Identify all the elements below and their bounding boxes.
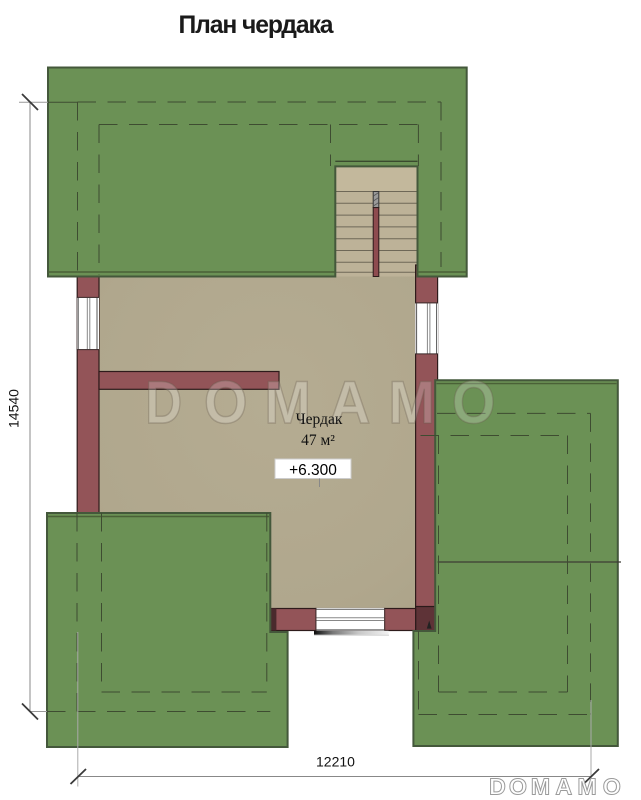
svg-text:O: O [452, 370, 495, 436]
svg-text:O: O [509, 774, 527, 800]
svg-text:M: M [531, 774, 550, 800]
svg-text:O: O [603, 774, 621, 800]
svg-text:+6.300: +6.300 [289, 462, 337, 479]
svg-text:14540: 14540 [6, 389, 22, 428]
svg-text:Чердак: Чердак [296, 411, 343, 428]
svg-text:D: D [489, 774, 506, 800]
svg-text:D: D [145, 369, 182, 436]
svg-text:A: A [555, 774, 572, 800]
svg-text:47 м²: 47 м² [301, 432, 335, 449]
svg-text:M: M [577, 774, 596, 800]
svg-text:План чердака: План чердака [179, 12, 334, 39]
svg-text:M: M [388, 370, 434, 436]
svg-text:12210: 12210 [316, 754, 355, 770]
svg-text:O: O [204, 370, 247, 436]
